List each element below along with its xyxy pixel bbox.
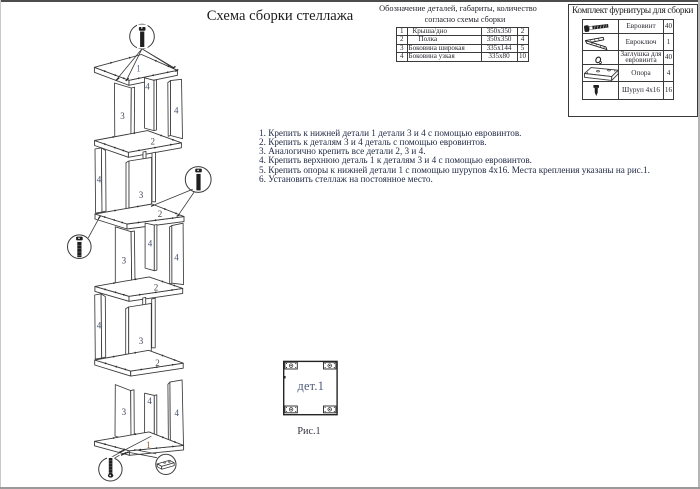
svg-text:3: 3: [139, 336, 144, 346]
svg-text:4: 4: [97, 321, 102, 331]
svg-text:3: 3: [120, 111, 125, 121]
svg-text:4: 4: [148, 239, 153, 249]
svg-text:1: 1: [146, 440, 151, 450]
svg-text:4: 4: [174, 106, 179, 116]
svg-text:1: 1: [136, 64, 141, 74]
svg-text:4: 4: [145, 82, 150, 92]
svg-text:4: 4: [97, 175, 102, 185]
svg-text:3: 3: [139, 190, 144, 200]
svg-text:4: 4: [147, 396, 152, 406]
svg-text:2: 2: [155, 358, 160, 368]
svg-text:Рис.1: Рис.1: [297, 426, 320, 437]
svg-text:2: 2: [158, 209, 163, 219]
svg-text:дет.1: дет.1: [297, 379, 324, 393]
svg-text:2: 2: [154, 283, 159, 293]
svg-text:3: 3: [122, 407, 127, 417]
svg-text:3: 3: [122, 256, 127, 266]
svg-text:2: 2: [150, 137, 155, 147]
svg-text:4: 4: [175, 408, 180, 418]
svg-text:4: 4: [174, 253, 179, 263]
